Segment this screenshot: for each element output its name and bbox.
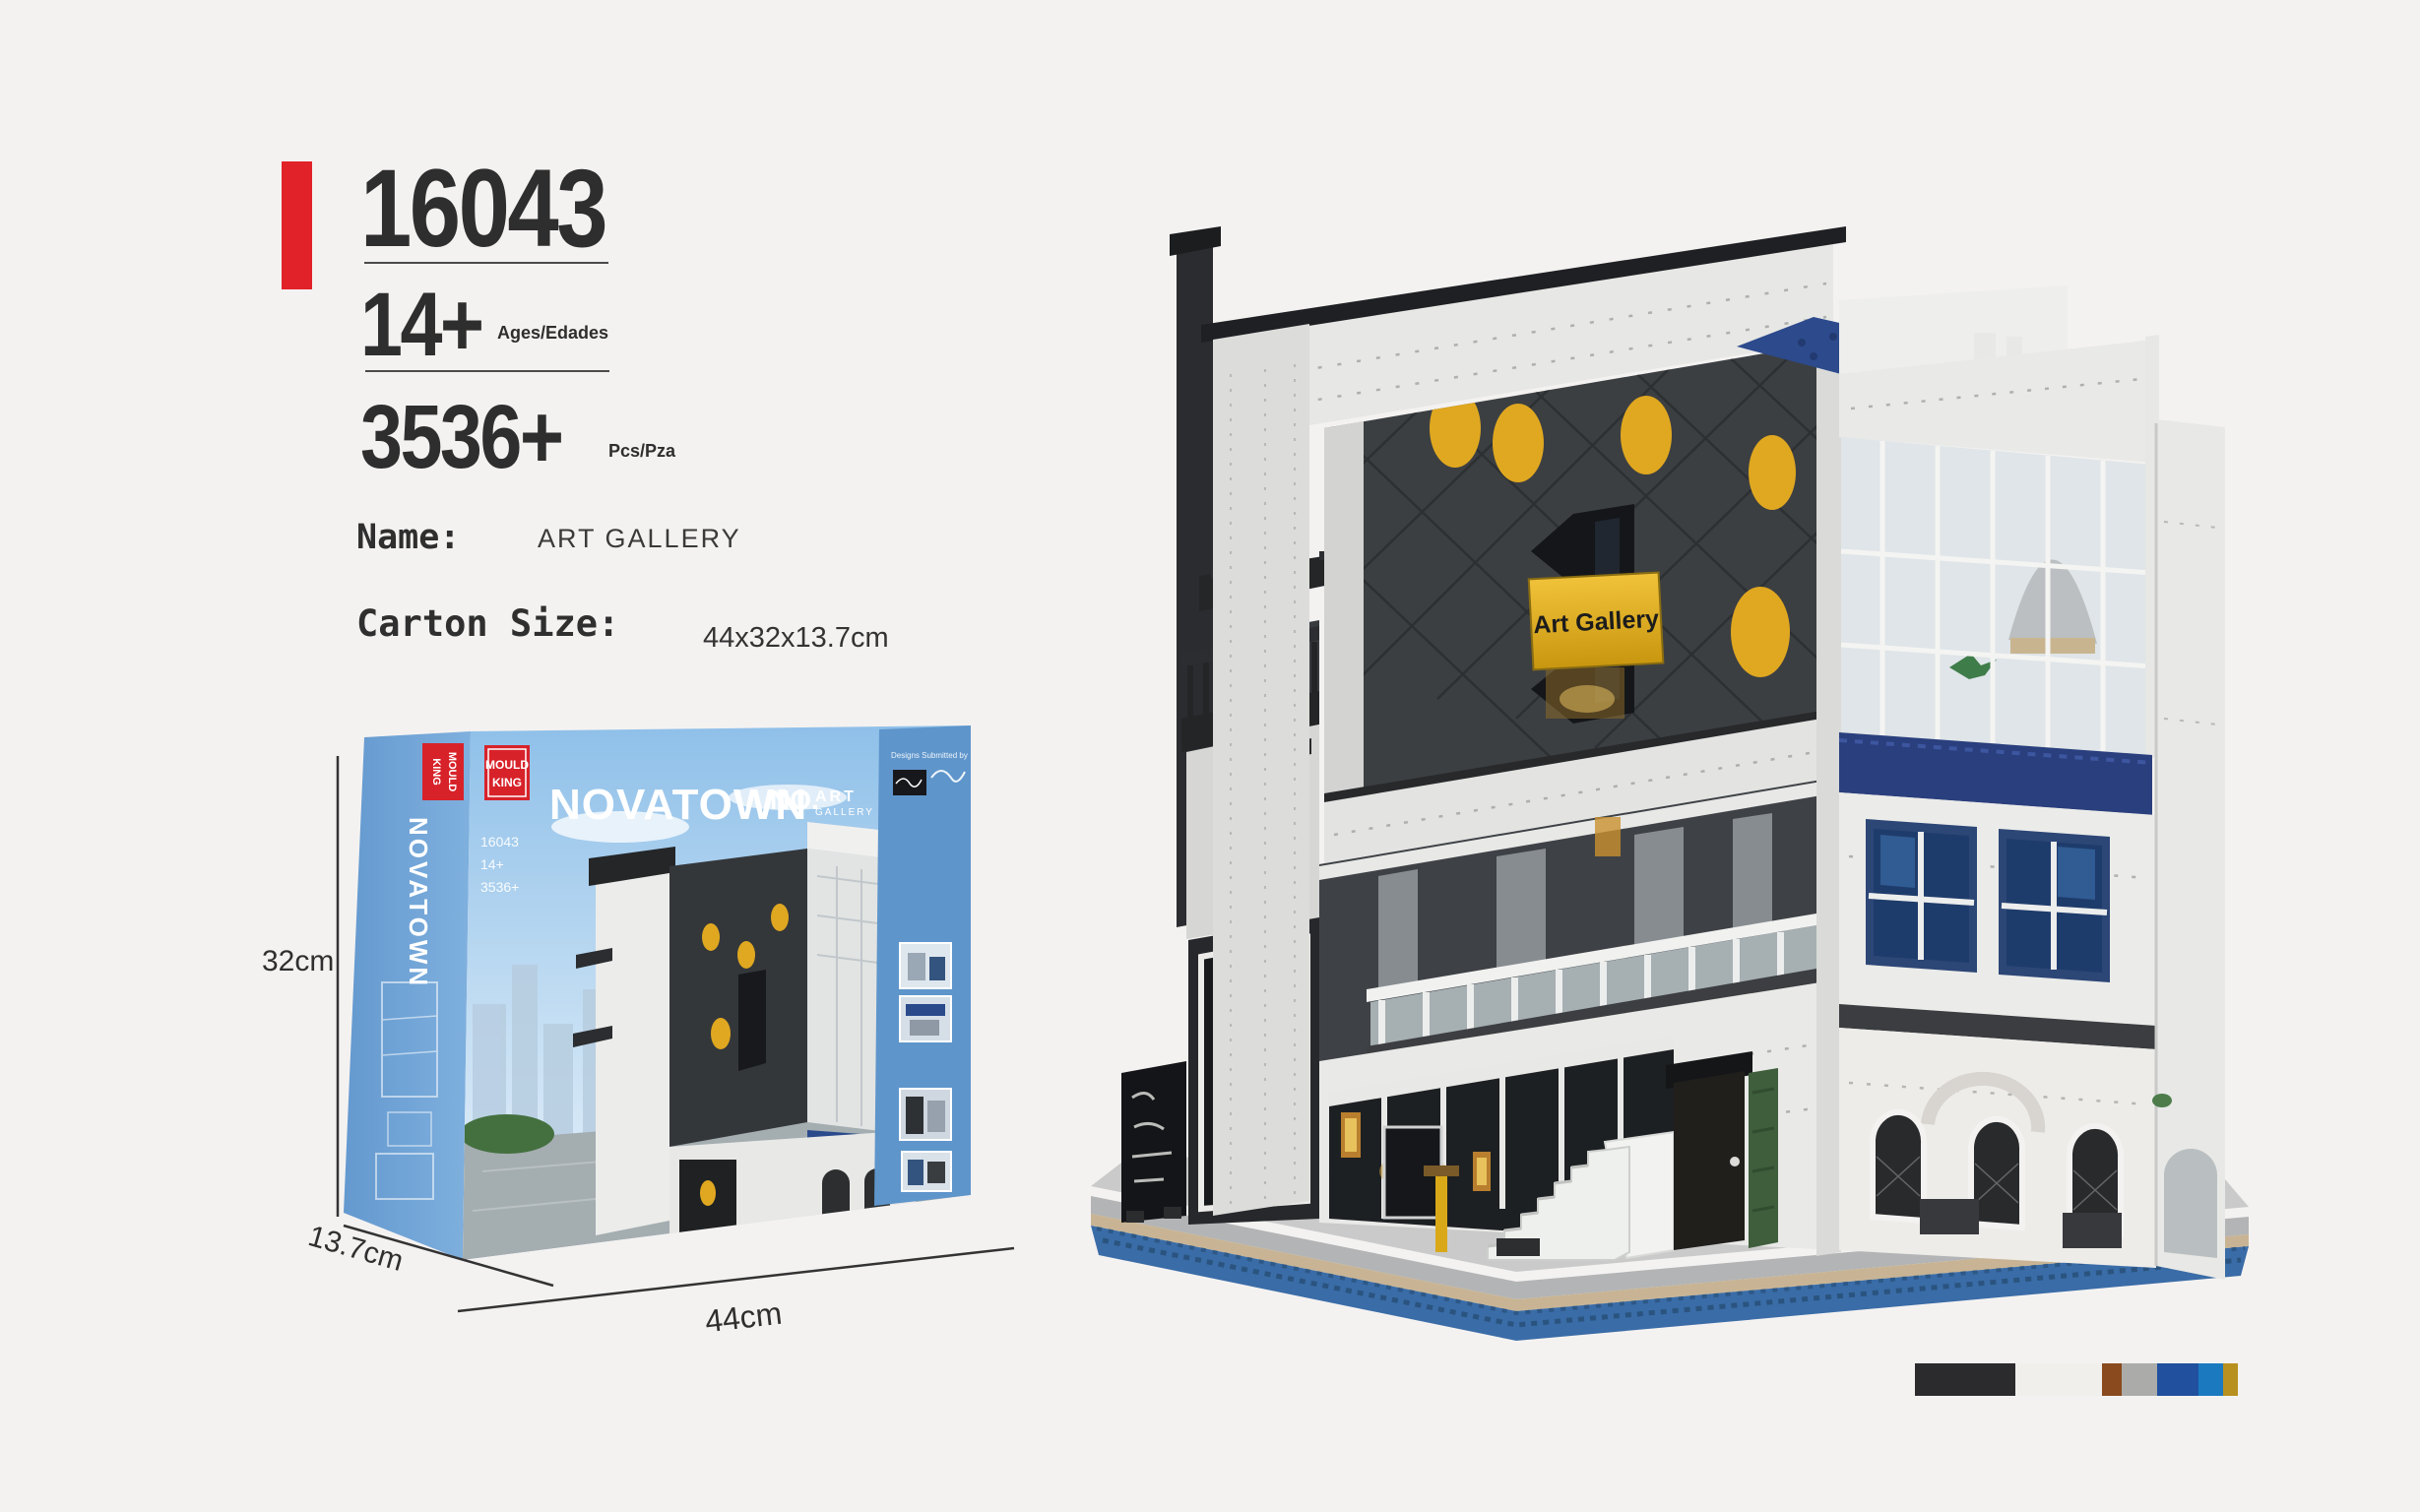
age-unit-label: Ages/Edades: [497, 323, 608, 344]
blue-framed-window: [1999, 829, 2110, 982]
small-plant: [2152, 1094, 2172, 1107]
name-label: Name:: [356, 518, 460, 557]
product-sheet: 16043 14+ Ages/Edades 3536+ Pcs/Pza Name…: [0, 0, 2420, 1512]
palette-swatch-white: [2015, 1363, 2102, 1396]
palette-swatch-brown: [2102, 1363, 2122, 1396]
color-palette-strip: [1915, 1363, 2238, 1396]
menu-sign-board: [1121, 1061, 1186, 1223]
model-number: 16043: [360, 154, 605, 264]
palette-swatch-dark-blue: [2157, 1363, 2198, 1396]
age-value: 14+: [360, 280, 482, 370]
red-accent-bar: [282, 161, 312, 289]
white-corner-column: [1213, 324, 1309, 1216]
window-box: [2063, 1213, 2122, 1248]
carton-size-label: Carton Size:: [356, 602, 619, 645]
palette-swatch-gold: [2223, 1363, 2238, 1396]
plant-wall: [1749, 1068, 1778, 1248]
height-dimension-label: 32cm: [262, 945, 334, 978]
blue-framed-window: [1866, 819, 1977, 973]
pieces-unit-label: Pcs/Pza: [608, 441, 675, 462]
name-value: ART GALLERY: [538, 524, 741, 554]
divider-line: [364, 262, 608, 264]
model-photo: Art Gallery: [1083, 226, 2333, 1427]
palette-swatch-black: [1915, 1363, 2015, 1396]
pieces-value: 3536+: [360, 392, 561, 482]
dimension-lines: [256, 728, 1044, 1398]
palette-swatch-bright-blue: [2198, 1363, 2223, 1396]
yellow-pole: [1435, 1173, 1447, 1252]
art-gallery-sign: Art Gallery: [1529, 573, 1664, 670]
palette-swatch-gray: [2122, 1363, 2157, 1396]
right-side-wing: [2152, 419, 2225, 1280]
window-box: [1920, 1199, 1979, 1234]
interior-lamp: [1595, 817, 1621, 856]
divider-line: [365, 370, 609, 372]
carton-size-value: 44x32x13.7cm: [703, 622, 889, 655]
porch-arch: [2164, 1149, 2217, 1258]
